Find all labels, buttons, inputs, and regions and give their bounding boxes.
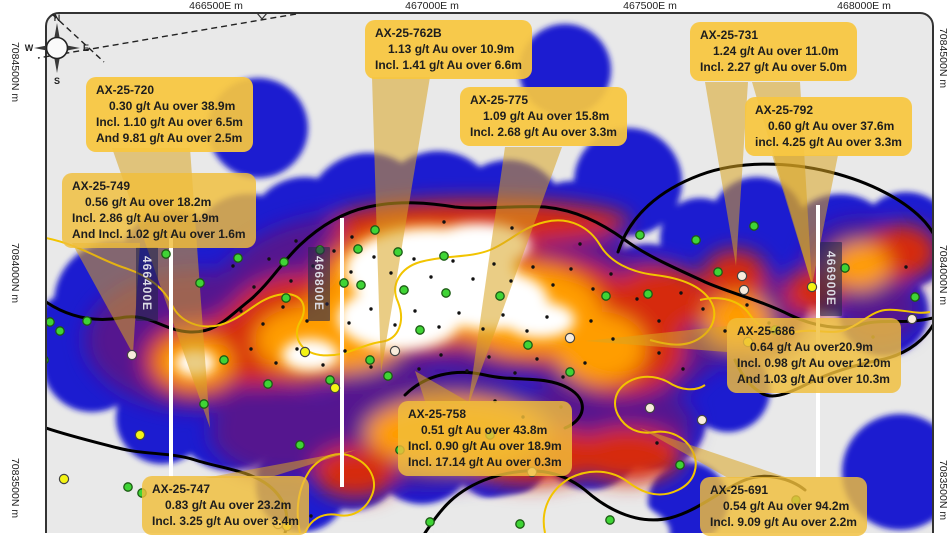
collar-dot-black [561,375,564,378]
collar-dot-black [294,239,297,242]
compass-west-label: W [25,43,34,53]
collar-dot-green [234,254,242,262]
collar-dot-white [907,314,916,323]
collar-dot-green [357,281,365,289]
collar-dot-green [162,250,170,258]
callout-AX-25-731: AX-25-731 1.24 g/t Au over 11.0m Incl. 2… [690,22,857,81]
result-line: 0.83 g/t Au over 23.2m [152,497,299,513]
collar-dot-black [745,303,748,306]
section-label-466900E: 466900E [820,242,842,316]
collar-dot-green [606,516,614,524]
callout-AX-25-686: AX-25-686 0.64 g/t Au over20.9m Incl. 0.… [727,318,901,393]
collar-dot-green [83,317,91,325]
collar-dot-yellow [330,383,339,392]
collar-dot-black [389,271,392,274]
collar-dot-black [492,262,495,265]
result-line: 1.09 g/t Au over 15.8m [470,108,617,124]
collar-dot-white [697,415,706,424]
collar-dot-black [332,249,335,252]
collar-dot-green [750,222,758,230]
collar-dot-black [589,319,592,322]
collar-dot-green [124,483,132,491]
collar-dot-black [457,311,460,314]
collar-dot-green [602,292,610,300]
collar-dot-black [657,319,660,322]
hole-id: AX-25-747 [152,481,299,497]
collar-dot-green [354,245,362,253]
hole-id: AX-25-720 [96,82,243,98]
collar-dot-black [261,322,264,325]
section-label-466400E: 466400E [136,247,158,321]
collar-dot-green [841,264,849,272]
result-line: Incl. 1.10 g/t Au over 6.5m [96,114,243,130]
result-line: 0.60 g/t Au over 37.6m [755,118,902,134]
collar-dot-black [372,255,375,258]
collar-dot-green [400,286,408,294]
result-line: And 9.81 g/t Au over 2.5m [96,130,243,146]
collar-dot-black [274,361,277,364]
collar-dot-black [535,357,538,360]
callout-AX-25-747: AX-25-747 0.83 g/t Au over 23.2m Incl. 3… [142,476,309,535]
compass-east-label: E [83,43,89,53]
collar-dot-black [531,265,534,268]
result-line: 0.51 g/t Au over 43.8m [408,422,562,438]
collar-dot-black [413,309,416,312]
collar-dot-green [911,293,919,301]
result-line: And Incl. 1.02 g/t Au over 1.6m [72,226,246,242]
drill-results-map-figure: { "figure": { "axis_labels_top": ["46650… [0,0,950,533]
collar-dot-black [635,297,638,300]
result-line: incl. 4.25 g/t Au over 3.3m [755,134,902,150]
hole-id: AX-25-792 [755,102,902,118]
collar-dot-white [565,333,574,342]
collar-dot-green [644,290,652,298]
collar-dot-green [280,258,288,266]
callout-AX-25-758: AX-25-758 0.51 g/t Au over 43.8m Incl. 0… [398,401,572,476]
result-line: Incl. 1.41 g/t Au over 6.6m [375,57,522,73]
collar-dot-black [525,329,528,332]
callout-AX-25-691: AX-25-691 0.54 g/t Au over 94.2m Incl. 9… [700,477,867,536]
collar-dot-black [349,270,352,273]
easting-label-468000: 468000E m [837,0,891,12]
collar-dot-green [416,326,424,334]
collar-dot-black [513,371,516,374]
collar-dot-green [46,318,54,326]
collar-dot-black [509,279,512,282]
northing-label-right-7084500: 7084500N m [937,28,949,88]
compass-circle [47,38,68,59]
collar-dot-black [369,307,372,310]
collar-dot-white [737,271,746,280]
collar-dot-black [657,351,660,354]
collar-dot-black [679,291,682,294]
collar-dot-green [296,441,304,449]
collar-dot-black [267,257,270,260]
collar-dot-black [551,283,554,286]
result-line: 1.13 g/t Au over 10.9m [375,41,522,57]
collar-dot-black [343,349,346,352]
collar-dot-black [429,275,432,278]
collar-dot-black [611,337,614,340]
collar-dot-black [350,235,353,238]
result-line: 0.54 g/t Au over 94.2m [710,498,857,514]
collar-dot-black [501,313,504,316]
collar-dot-green [394,248,402,256]
result-line: Incl. 2.86 g/t Au over 1.9m [72,210,246,226]
collar-dot-black [591,287,594,290]
collar-dot-green [56,327,64,335]
result-line: Incl. 2.27 g/t Au over 5.0m [700,59,847,75]
collar-dot-green [496,292,504,300]
result-line: 0.56 g/t Au over 18.2m [72,194,246,210]
collar-dot-black [481,327,484,330]
collar-dot-green [282,294,290,302]
hole-id: AX-25-731 [700,27,847,43]
collar-dot-green [196,279,204,287]
collar-dot-black [231,264,234,267]
collar-dot-green [692,236,700,244]
collar-dot-black [465,369,468,372]
collar-dot-black [437,325,440,328]
hole-id: AX-25-762B [375,25,522,41]
compass-north-label: N [54,13,61,23]
easting-label-466500: 466500E m [189,0,243,12]
northing-label-left-7083500: 7083500N m [9,458,21,518]
result-line: 0.30 g/t Au over 38.9m [96,98,243,114]
result-line: 1.24 g/t Au over 11.0m [700,43,847,59]
collar-dot-black [451,259,454,262]
collar-dot-white [127,350,136,359]
collar-dot-green [340,279,348,287]
result-line: Incl. 9.09 g/t Au over 2.2m [710,514,857,530]
collar-dot-black [609,272,612,275]
collar-dot-green [326,376,334,384]
collar-dot-black [309,514,312,517]
callout-AX-25-792: AX-25-792 0.60 g/t Au over 37.6m incl. 4… [745,97,912,156]
result-line: And 1.03 g/t Au over 10.3m [737,371,891,387]
collar-dot-black [545,315,548,318]
collar-dot-black [281,305,284,308]
collar-dot-black [442,220,445,223]
collar-dot-black [417,367,420,370]
collar-dot-black [487,355,490,358]
collar-dot-green [426,518,434,526]
hole-id: AX-25-686 [737,323,891,339]
callout-AX-25-720: AX-25-720 0.30 g/t Au over 38.9m Incl. 1… [86,77,253,152]
northing-label-left-7084000: 7084000N m [9,243,21,303]
result-line: Incl. 2.68 g/t Au over 3.3m [470,124,617,140]
collar-dot-black [510,226,513,229]
collar-dot-black [583,361,586,364]
collar-dot-black [569,267,572,270]
collar-dot-green [442,289,450,297]
collar-dot-black [701,307,704,310]
result-line: Incl. 0.98 g/t Au over 12.0m [737,355,891,371]
hole-id: AX-25-775 [470,92,617,108]
collar-dot-black [471,277,474,280]
result-line: Incl. 3.25 g/t Au over 3.4m [152,513,299,529]
collar-dot-black [681,367,684,370]
collar-dot-green [714,268,722,276]
collar-dot-black [393,323,396,326]
collar-dot-black [289,279,292,282]
collar-dot-green [516,520,524,528]
northing-label-left-7084500: 7084500N m [9,42,21,102]
result-line: Incl. 17.14 g/t Au over 0.3m [408,454,562,470]
compass-south-label: S [54,76,60,86]
hole-id: AX-25-758 [408,406,562,422]
collar-dot-black [904,265,907,268]
collar-dot-green [220,356,228,364]
collar-dot-green [566,368,574,376]
collar-dot-green [440,252,448,260]
callout-AX-25-762B: AX-25-762B 1.13 g/t Au over 10.9m Incl. … [365,20,532,79]
result-line: Incl. 0.90 g/t Au over 18.9m [408,438,562,454]
collar-dot-green [264,380,272,388]
collar-dot-green [366,356,374,364]
collar-dot-black [412,257,415,260]
collar-dot-green [676,461,684,469]
collar-dot-black [655,441,658,444]
collar-dot-yellow [807,282,816,291]
collar-dot-black [249,347,252,350]
collar-dot-black [321,363,324,366]
section-label-466800E: 466800E [308,247,330,321]
collar-dot-black [252,285,255,288]
collar-dot-green [384,372,392,380]
collar-dot-black [578,242,581,245]
collar-dot-yellow [135,430,144,439]
result-line: 0.64 g/t Au over20.9m [737,339,891,355]
easting-label-467000: 467000E m [405,0,459,12]
hole-id: AX-25-691 [710,482,857,498]
collar-dot-yellow [59,474,68,483]
callout-AX-25-775: AX-25-775 1.09 g/t Au over 15.8m Incl. 2… [460,87,627,146]
collar-dot-black [439,353,442,356]
collar-dot-black [369,365,372,368]
collar-dot-white [739,285,748,294]
callout-AX-25-749: AX-25-749 0.56 g/t Au over 18.2m Incl. 2… [62,173,256,248]
collar-dot-black [239,309,242,312]
collar-dot-yellow [300,347,309,356]
collar-dot-white [645,403,654,412]
collar-dot-green [371,226,379,234]
easting-label-467500: 467500E m [623,0,677,12]
collar-dot-green [200,400,208,408]
collar-dot-green [524,341,532,349]
collar-dot-black [347,321,350,324]
northing-label-right-7084000: 7084000N m [937,245,949,305]
northing-label-right-7083500: 7083500N m [937,460,949,520]
hole-id: AX-25-749 [72,178,246,194]
collar-dot-green [636,231,644,239]
collar-dot-black [295,347,298,350]
collar-dot-white [390,346,399,355]
